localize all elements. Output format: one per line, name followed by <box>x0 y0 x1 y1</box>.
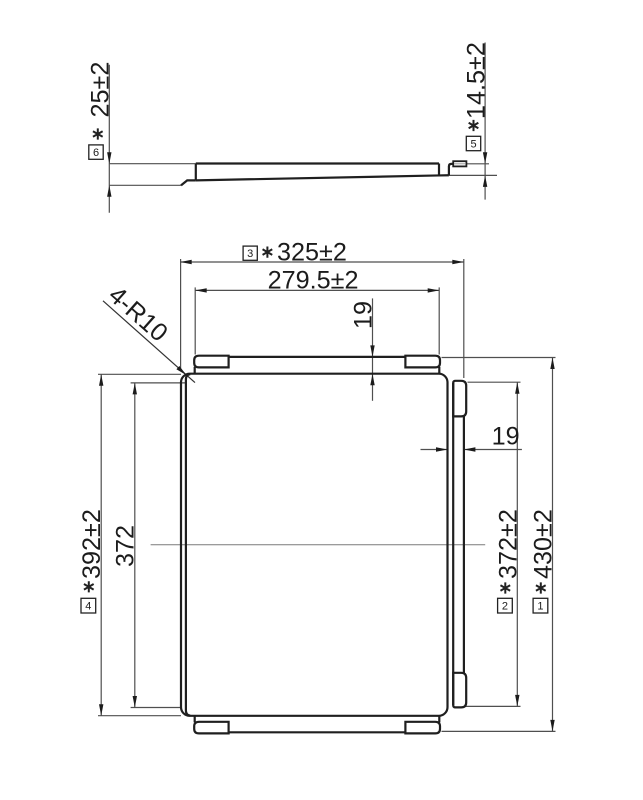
svg-text:4: 4 <box>85 601 91 613</box>
svg-text:6: 6 <box>93 147 99 159</box>
svg-text:325±2: 325±2 <box>277 238 347 266</box>
svg-text:2: 2 <box>502 601 508 613</box>
svg-text:372±2: 372±2 <box>494 509 522 579</box>
svg-text:430±2: 430±2 <box>530 509 558 579</box>
svg-text:392±2: 392±2 <box>78 509 106 579</box>
svg-text:19: 19 <box>349 301 377 329</box>
svg-text:19: 19 <box>492 422 520 450</box>
svg-text:14.5±2: 14.5±2 <box>462 42 490 119</box>
svg-text:3: 3 <box>247 248 253 260</box>
svg-text:5: 5 <box>470 139 476 151</box>
svg-text:279.5±2: 279.5±2 <box>268 267 359 295</box>
svg-text:1: 1 <box>537 601 543 613</box>
svg-text:372: 372 <box>112 525 140 567</box>
svg-text:25±2: 25±2 <box>87 62 115 118</box>
